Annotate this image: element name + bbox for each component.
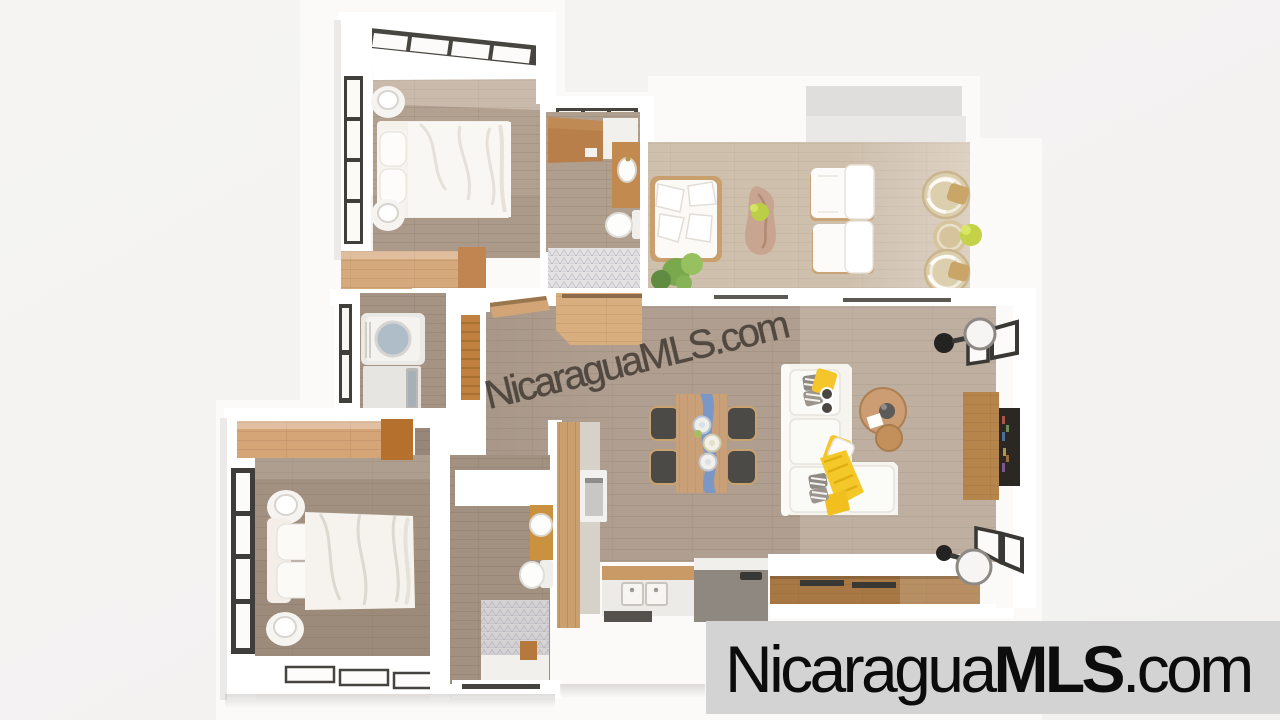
svg-text:NicaraguaMLS.com: NicaraguaMLS.com bbox=[725, 632, 1251, 706]
